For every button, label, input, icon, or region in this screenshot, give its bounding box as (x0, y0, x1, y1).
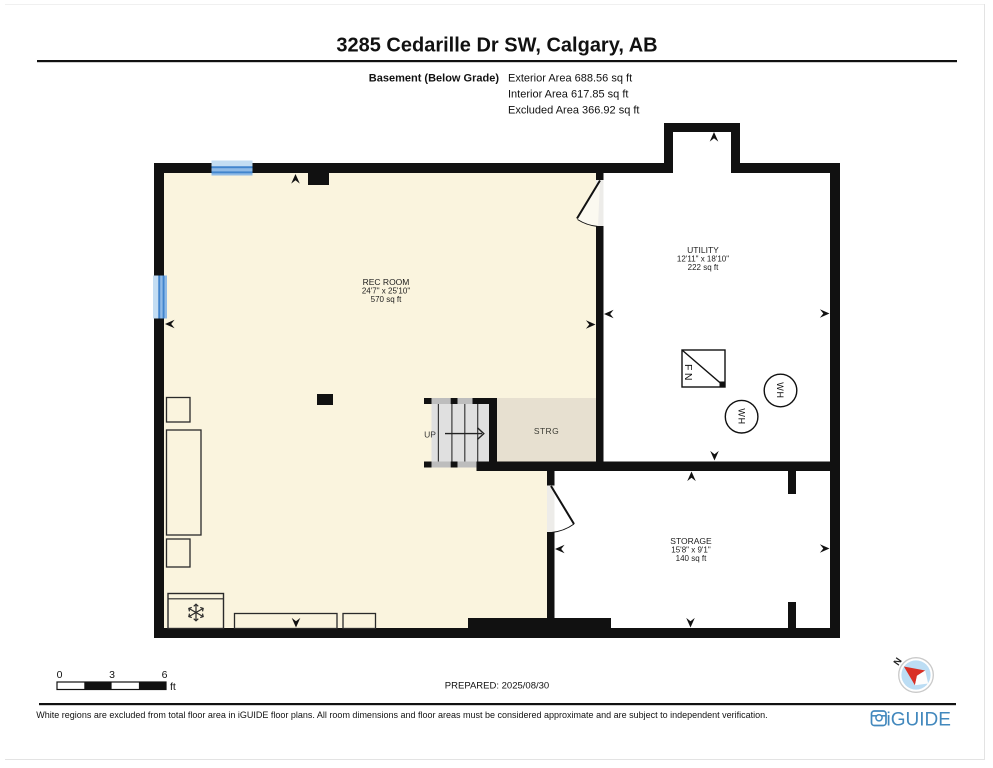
svg-text:WH: WH (736, 408, 746, 425)
svg-text:iGUIDE: iGUIDE (887, 710, 951, 731)
svg-text:3: 3 (109, 669, 115, 681)
svg-text:Interior Area 617.85 sq ft: Interior Area 617.85 sq ft (508, 89, 628, 101)
svg-text:6: 6 (162, 669, 168, 681)
svg-text:Basement (Below Grade): Basement (Below Grade) (369, 73, 500, 85)
svg-text:WH: WH (775, 382, 785, 399)
svg-text:222 sq ft: 222 sq ft (688, 263, 719, 272)
svg-text:REC ROOM: REC ROOM (363, 277, 410, 287)
svg-text:White regions are excluded fro: White regions are excluded from total fl… (36, 710, 767, 720)
svg-text:570 sq ft: 570 sq ft (371, 295, 402, 304)
svg-text:STORAGE: STORAGE (670, 536, 712, 546)
svg-text:UTILITY: UTILITY (687, 245, 719, 255)
svg-text:FN: FN (682, 364, 694, 383)
svg-text:3285 Cedarille Dr SW, Calgary,: 3285 Cedarille Dr SW, Calgary, AB (336, 35, 657, 57)
svg-text:140 sq ft: 140 sq ft (676, 554, 707, 563)
svg-text:STRG: STRG (534, 426, 559, 436)
svg-text:UP: UP (424, 430, 436, 440)
svg-text:Excluded Area 366.92 sq ft: Excluded Area 366.92 sq ft (508, 105, 639, 117)
svg-text:0: 0 (57, 669, 63, 681)
svg-text:ft: ft (170, 681, 176, 693)
svg-text:PREPARED: 2025/08/30: PREPARED: 2025/08/30 (445, 681, 549, 692)
svg-text:Exterior Area 688.56 sq ft: Exterior Area 688.56 sq ft (508, 73, 632, 85)
